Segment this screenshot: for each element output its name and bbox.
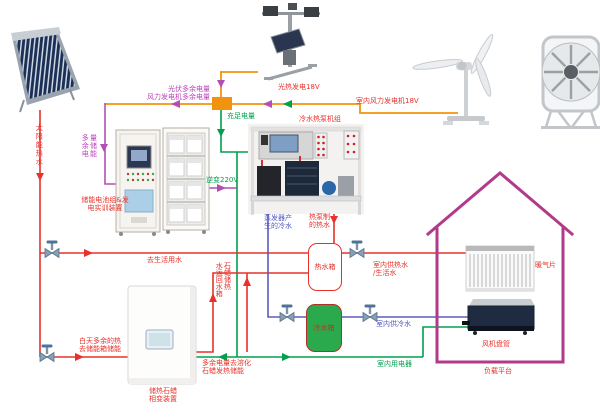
label-radiator: 暖气片: [535, 261, 556, 269]
label-load-platform: 负载平台: [484, 367, 512, 375]
cold-water-tank-label: 冷水箱: [314, 323, 335, 333]
energy-system-diagram: 热水箱 冷水箱 太阳能热水 多余电 量储能 储能电池组&发 电实训装置 光伏多余…: [0, 0, 600, 419]
label-heat-pump-unit: 冷水热泵机组: [299, 115, 341, 123]
arrow-down-icon: [36, 173, 44, 181]
label-day-surplus-heat: 白天多余的热 去储能箱储能: [79, 337, 127, 354]
label-sufficient-power: 充足电量: [227, 112, 255, 120]
pcm-storage-unit: [128, 286, 196, 384]
hot-water-tank: 热水箱: [308, 243, 342, 291]
valve-icon: [350, 241, 364, 258]
valve-icon: [363, 305, 377, 322]
arrow-right-icon: [282, 353, 291, 361]
label-solar-hot-water: 太阳能热水: [35, 124, 43, 172]
arrow-left-icon: [263, 100, 272, 108]
valve-icon: [280, 305, 294, 322]
valve-icon: [40, 345, 54, 362]
label-fan-coil: 风机盘管: [482, 340, 510, 348]
arrow-right-icon: [75, 353, 84, 361]
label-surplus-melt-paraffin: 多余电量去溶化 石蜡发热储能: [202, 359, 260, 376]
heat-pump-bench: [248, 124, 364, 215]
label-pv-wind-surplus: 光伏多余电量 风力发电机多余电量: [144, 85, 210, 102]
axial-fan: [541, 37, 600, 129]
label-indoor-cold-supply: 室内供冷水: [376, 320, 411, 328]
label-paraffin-return: 石蜡储热 水运回水箱: [215, 262, 232, 306]
junction-box: [212, 97, 232, 110]
solar-collector: [11, 27, 80, 112]
battery-rack-cabinet: [163, 128, 209, 234]
label-battery-cabinet: 储能电池组&发 电实训装置: [76, 196, 134, 213]
arrow-right-icon: [217, 184, 226, 192]
wind-turbine: [412, 33, 495, 125]
label-heat-pump-hot-water: 热泵制 的热水: [309, 213, 335, 230]
cold-water-tank: 冷水箱: [306, 304, 342, 352]
label-surplus-storage: 多余电 量储能: [81, 134, 98, 182]
arrow-down-icon: [217, 80, 225, 88]
solar-tracker-generator: [262, 3, 320, 80]
arrow-up-icon: [243, 277, 251, 286]
label-to-domestic-water: 去生活用水: [147, 256, 182, 264]
label-indoor-wind-18v: 室内风力发电机18V: [356, 97, 419, 105]
arrow-left-icon: [283, 100, 292, 108]
arrow-down-icon: [217, 129, 225, 137]
radiator: [466, 246, 534, 291]
fan-coil-unit: [462, 299, 535, 335]
label-evaporator-cold-water: 蒸发器产 生的冷水: [264, 214, 296, 231]
battery-control-cabinet: [116, 130, 160, 236]
arrow-down-icon: [100, 144, 108, 152]
label-indoor-hot-supply: 室内供热水 /生活水: [373, 261, 415, 278]
label-solar-thermal-18v: 光热发电18V: [278, 83, 320, 91]
label-indoor-appliances: 室内用电器: [377, 360, 412, 368]
valve-icon: [45, 241, 59, 258]
hot-water-tank-label: 热水箱: [315, 262, 336, 272]
label-inverter-220v: 逆变220V: [206, 176, 238, 184]
arrow-right-icon: [84, 249, 93, 257]
label-pcm-device: 储热石蜡 相变装置: [145, 387, 181, 404]
